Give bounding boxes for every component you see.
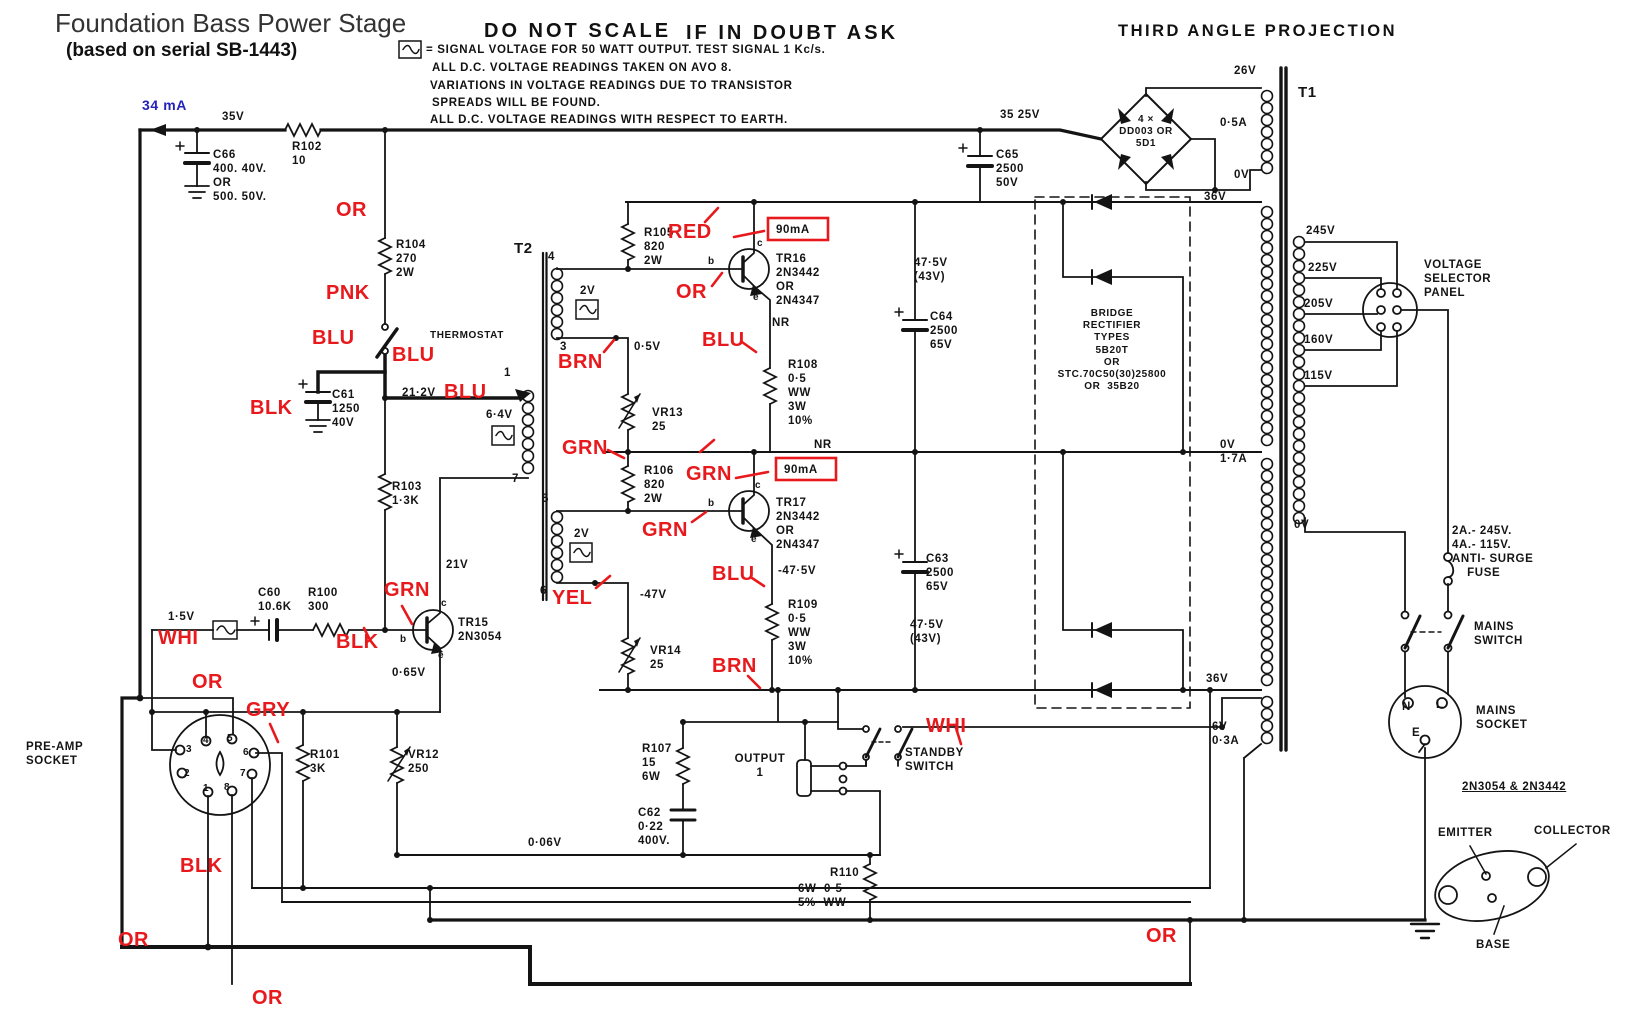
preamp-socket: [170, 715, 270, 815]
lbl-36v-top: 36V: [1204, 190, 1226, 204]
wire-grn-1: GRN: [562, 438, 608, 458]
lbl-r110a: R110: [830, 866, 859, 880]
lbl-pp1: 1: [203, 783, 209, 795]
lbl-160v: 160V: [1304, 333, 1333, 347]
lbl-r103: R103 1·3K: [392, 480, 422, 508]
wire-grn-4: GRN: [384, 580, 430, 600]
lbl-26v: 26V: [1234, 64, 1256, 78]
lbl-pin-n: N: [1402, 700, 1411, 714]
lbl-nr2: NR: [814, 438, 832, 452]
lbl-c66: C66 400. 40V. OR 500. 50V.: [213, 148, 267, 204]
capacitor-c64: [903, 320, 927, 330]
resistor-r101: [297, 745, 309, 781]
lbl-tr17: TR17 2N3442 OR 2N4347: [776, 496, 820, 552]
resistor-r107: [677, 748, 689, 784]
lbl-r109: R109 0·5 WW 3W 10%: [788, 598, 818, 668]
wire-blu-4: BLU: [702, 330, 745, 350]
lbl-collector: COLLECTOR: [1534, 824, 1611, 838]
lbl-90ma-1: 90mA: [776, 223, 810, 237]
resistor-r110: [864, 864, 876, 900]
lbl-pp7: 7: [240, 768, 246, 780]
lbl-emitter: EMITTER: [1438, 826, 1493, 840]
capacitor-c60: [269, 620, 277, 640]
lbl-21v: 21V: [446, 558, 468, 572]
lbl-pp6: 6: [243, 747, 249, 759]
wire-pnk: PNK: [326, 283, 370, 303]
lbl-35-25v: 35 25V: [1000, 108, 1040, 122]
lbl-e15: e: [438, 650, 444, 662]
lbl-0v-sec: 0V: [1234, 168, 1249, 182]
component-symbols: [150, 41, 1556, 938]
lbl-2v-b: 2V: [574, 527, 589, 541]
wire-or-2: OR: [676, 282, 707, 302]
lbl-c62: C62 0·22 400V.: [638, 806, 670, 848]
wire-red: RED: [668, 222, 712, 242]
current-arrow: [150, 124, 166, 136]
lbl-0-06v: 0·06V: [528, 836, 562, 850]
earth-icon: [1411, 924, 1439, 938]
lbl-r110b: 6W 0·5 5% WW: [798, 882, 846, 910]
lbl-t1: T1: [1298, 84, 1317, 102]
lbl-36v-bot: 36V: [1206, 672, 1228, 686]
wire-blu-1: BLU: [312, 328, 355, 348]
transformer-t2: [523, 253, 563, 600]
lbl-thermostat: THERMOSTAT: [430, 330, 504, 342]
wire-or-6: OR: [1146, 926, 1177, 946]
lbl-term5: 5: [542, 492, 549, 506]
wire-or-3: OR: [192, 672, 223, 692]
lbl-selector: VOLTAGE SELECTOR PANEL: [1424, 258, 1491, 300]
lbl-vr12: VR12 250: [408, 748, 439, 776]
resistor-r104: [379, 238, 391, 274]
to3-package: [1428, 840, 1557, 932]
lbl-base: BASE: [1476, 938, 1510, 952]
lbl-mains-switch: MAINS SWITCH: [1474, 620, 1523, 648]
lbl-e16: e: [753, 292, 759, 304]
lbl-c17: c: [755, 480, 761, 492]
polarity-marks: [176, 142, 967, 625]
lbl-r100: R100 300: [308, 586, 338, 614]
lbl-90ma-2: 90mA: [784, 463, 818, 477]
lbl-e17: e: [751, 534, 757, 546]
lbl-vr14: VR14 25: [650, 644, 681, 672]
wire-blk-2: BLK: [336, 632, 379, 652]
lbl-pp5: 5: [227, 733, 233, 745]
wire-or-1: OR: [336, 200, 367, 220]
lbl-m47v: -47V: [640, 588, 667, 602]
wire-or-5: OR: [252, 988, 283, 1008]
lbl-mains-socket: MAINS SOCKET: [1476, 704, 1528, 732]
lbl-bridge-main: 4 × DD003 OR 5D1: [1106, 114, 1186, 151]
schematic-page: Foundation Bass Power Stage (based on se…: [0, 0, 1627, 1020]
lbl-0-5v: 0·5V: [634, 340, 661, 354]
lbl-115v: 115V: [1304, 369, 1333, 383]
lbl-standby: STANDBY SWITCH: [905, 746, 964, 774]
lbl-term7: 7: [512, 472, 519, 486]
lbl-c16: c: [757, 238, 763, 250]
wire-gry: GRY: [246, 700, 290, 720]
lbl-bridge-box: BRIDGE RECTIFIER TYPES 5B20T OR STC.70C5…: [1037, 308, 1187, 393]
lbl-b16: b: [708, 256, 715, 268]
lbl-vr13: VR13 25: [652, 406, 683, 434]
lbl-tr15: TR15 2N3054: [458, 616, 502, 644]
lbl-term4: 4: [548, 250, 555, 264]
lbl-c15: c: [441, 598, 447, 610]
wire-blu-3: BLU: [444, 382, 487, 402]
resistor-r109: [766, 604, 778, 640]
lbl-r101: R101 3K: [310, 748, 340, 776]
lbl-r106: R106 820 2W: [644, 464, 674, 506]
lbl-475v-1: 47·5V (43V): [914, 256, 948, 284]
lbl-c61: C61 1250 40V: [332, 388, 360, 430]
lbl-output: OUTPUT 1: [730, 752, 790, 780]
wires: [122, 88, 1576, 984]
resistor-r103: [379, 474, 391, 510]
lbl-c64: C64 2500 65V: [930, 310, 958, 352]
earth-icon: [306, 420, 330, 432]
lbl-c63: C63 2500 65V: [926, 552, 954, 594]
wire-grn-2: GRN: [686, 464, 732, 484]
lbl-m475v: -47·5V: [778, 564, 816, 578]
lbl-pp8: 8: [224, 782, 230, 794]
lbl-b17: b: [708, 498, 715, 510]
lbl-c60: C60 10.6K: [258, 586, 292, 614]
resistor-r105: [622, 224, 634, 260]
resistor-r106: [622, 466, 634, 502]
lbl-6v: 6V 0·3A: [1212, 720, 1239, 748]
lbl-1-5v: 1·5V: [168, 610, 195, 624]
lbl-245v: 245V: [1306, 224, 1335, 238]
lbl-preamp: PRE-AMP SOCKET: [26, 740, 83, 768]
wire-whi-1: WHI: [158, 628, 198, 648]
wire-blk-1: BLK: [250, 398, 293, 418]
capacitor-c63: [903, 562, 927, 572]
lbl-2v-a: 2V: [580, 284, 595, 298]
lbl-21-2v: 21·2V: [402, 386, 436, 400]
wire-blu-2: BLU: [392, 345, 435, 365]
lbl-nr1: NR: [772, 316, 790, 330]
wire-blu-5: BLU: [712, 564, 755, 584]
mains-switch: [1402, 612, 1464, 652]
red-annotations: [270, 208, 961, 744]
lbl-475v-2: 47·5V (43V): [910, 618, 944, 646]
lbl-pinout-title: 2N3054 & 2N3442: [1462, 780, 1566, 794]
diodes: [1094, 194, 1112, 698]
pot-vr12: [391, 747, 403, 783]
transformer-t1: [1262, 68, 1305, 750]
lbl-c65: C65 2500 50V: [996, 148, 1024, 190]
lbl-term6: 6: [540, 584, 547, 598]
lbl-0v-17a: 0V 1·7A: [1220, 438, 1247, 466]
wire-yel: YEL: [552, 588, 592, 608]
lbl-pp3: 3: [186, 744, 192, 756]
lbl-r102: R102 10: [292, 140, 322, 168]
resistor-r102: [285, 124, 321, 136]
lbl-0-65v: 0·65V: [392, 666, 426, 680]
lbl-205v: 205V: [1304, 297, 1333, 311]
lbl-r108: R108 0·5 WW 3W 10%: [788, 358, 818, 428]
lbl-tr16: TR16 2N3442 OR 2N4347: [776, 252, 820, 308]
lbl-r104: R104 270 2W: [396, 238, 426, 280]
lbl-0v-prim: 0V: [1294, 518, 1309, 532]
wire-brn-2: BRN: [712, 656, 757, 676]
lbl-fuse: 2A.- 245V. 4A.- 115V. ANTI- SURGE FUSE: [1452, 524, 1533, 580]
lbl-r107: R107 15 6W: [642, 742, 672, 784]
capacitor-c66: [185, 153, 209, 163]
lbl-t2: T2: [514, 240, 533, 258]
lbl-pp2: 2: [184, 768, 190, 780]
wire-or-4: OR: [118, 930, 149, 950]
lbl-225v: 225V: [1308, 261, 1337, 275]
earth-icon: [185, 186, 209, 198]
wire-grn-3: GRN: [642, 520, 688, 540]
wire-blk-3: BLK: [180, 856, 223, 876]
wire-brn-1: BRN: [558, 352, 603, 372]
capacitor-c65: [968, 156, 992, 166]
lbl-term1: 1: [504, 366, 511, 380]
lbl-35v: 35V: [222, 110, 244, 124]
capacitor-c62: [671, 810, 695, 820]
lbl-0-5a: 0·5A: [1220, 116, 1247, 130]
wire-whi-2: WHI: [926, 716, 966, 736]
lbl-b15: b: [400, 634, 407, 646]
lbl-pin-l: L: [1436, 698, 1444, 712]
lbl-pin-e: E: [1412, 726, 1420, 740]
lbl-6-4v: 6·4V: [486, 408, 513, 422]
resistor-r108: [764, 368, 776, 404]
lbl-pp4: 4: [203, 735, 209, 747]
